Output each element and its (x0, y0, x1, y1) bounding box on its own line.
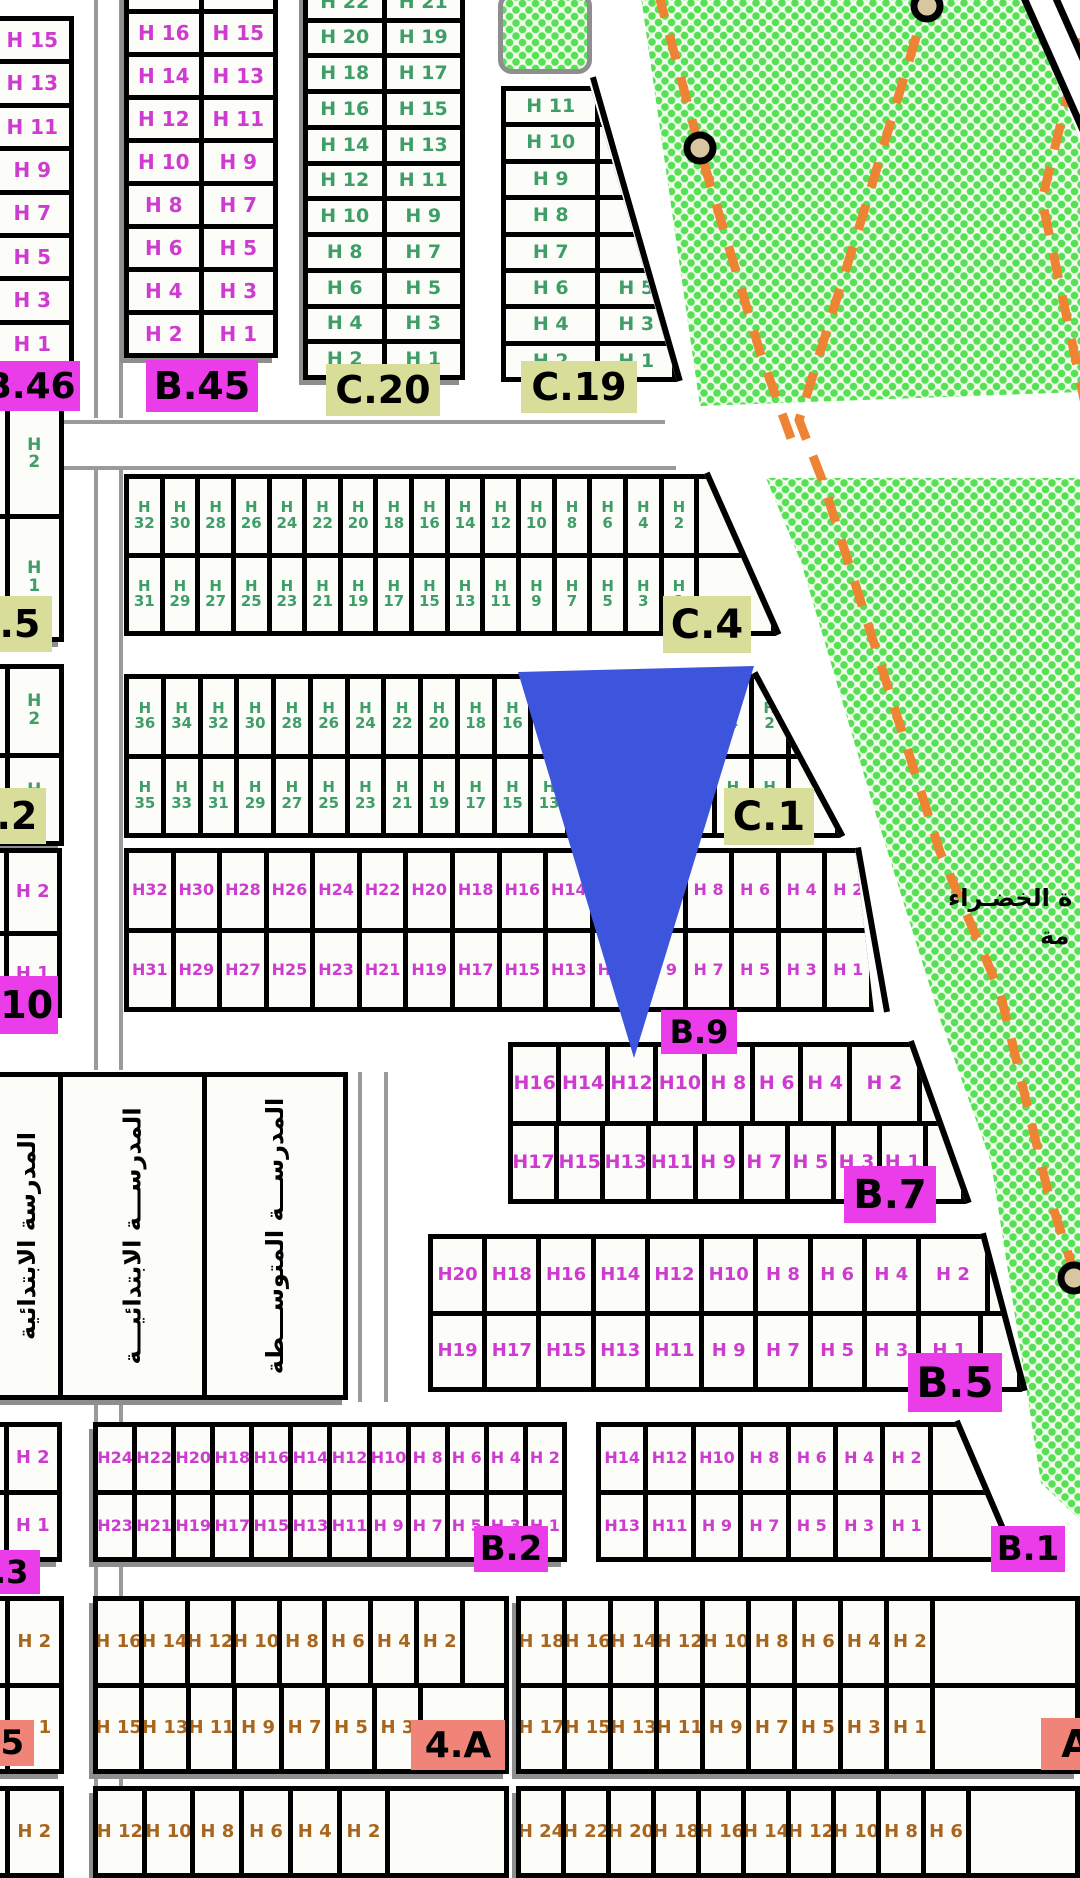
plot-label: H11 (332, 1518, 366, 1534)
plot-cell: H14 (450, 479, 481, 553)
plot-cell: H 6 (506, 273, 595, 304)
plot-cell: H29 (176, 933, 218, 1008)
plot-cell: H 16 (308, 94, 382, 125)
plot-label: H20 (348, 500, 369, 531)
plot-label: H 6 (249, 1823, 283, 1841)
plot-cell: H5 (592, 558, 623, 632)
block-row: H 18H 17 (129, 0, 273, 9)
plot-cell: H 4 (308, 309, 382, 340)
plot-cell: H33 (166, 759, 198, 834)
plot-cell: H 15 (98, 1688, 139, 1770)
block-bottom-right: H 24H 22H 20H 18H 16H 14H 12H 10H 8H 6 (516, 1786, 1080, 1878)
plot-label: H16 (504, 882, 540, 898)
block-label-text: C.19 (531, 365, 626, 409)
plot-cell: H 8 (195, 1791, 239, 1873)
plot-cell: H 4 (838, 1427, 880, 1490)
plot-label: H 8 (413, 1450, 443, 1466)
plot-label: H21 (365, 962, 401, 978)
plot-label: H 7 (746, 1153, 782, 1172)
manhole-circle-marker (914, 0, 940, 19)
plot-cell: H 6 (450, 1427, 484, 1490)
plot-cell: H 10 (236, 1601, 277, 1683)
plot-cell: H 1 (889, 1688, 930, 1770)
plot-label: H12 (490, 500, 511, 531)
plot-label: H10 (659, 1074, 701, 1093)
plot-label: H 9 (702, 1518, 732, 1534)
plot-cell: H 16 (129, 14, 199, 52)
block-row: H32H30H28H26H24H22H20H18H16H14H12H10H8H6… (129, 479, 771, 553)
plot-label: H 3 (847, 1719, 881, 1737)
block-label-C.19: C.19 (521, 361, 637, 413)
block-row: H 18H 17 (308, 58, 460, 89)
plot-cell: H 18 (656, 1791, 696, 1873)
plot-cell: H 8 (751, 1601, 792, 1683)
block-row: H 8H 7 (0, 195, 69, 233)
plot-cell: H25 (236, 558, 267, 632)
plot-cell: H 2 (419, 1601, 460, 1683)
plot-label: H 10 (236, 1633, 277, 1651)
plot-cell: H 7 (758, 1316, 807, 1388)
plot-cell: H 13 (204, 57, 274, 95)
block-row: H 8H 7 (308, 237, 460, 268)
plot-cell: H20 (343, 479, 374, 553)
plot-cell: H 7 (204, 186, 274, 224)
plot-cell: H 15 (567, 1688, 608, 1770)
plot-cell: H11 (651, 1126, 692, 1200)
plot-cell: H 17 (387, 58, 461, 89)
block-row: H 12H 11 (0, 108, 69, 146)
plot-cell: H 8 (758, 1239, 807, 1311)
block-label-text: C.1 (733, 794, 805, 840)
plot-cell: H17 (513, 1126, 554, 1200)
plot-label: H 4 (377, 1633, 411, 1651)
plot-label: H13 (600, 1342, 640, 1360)
plot-label: H 5 (334, 1719, 368, 1737)
plot-label: H 2 (17, 1633, 51, 1651)
plot-label: H 15 (212, 23, 264, 43)
plot-cell: H 4 (803, 1047, 846, 1121)
plot-label: H 2 (423, 1633, 457, 1651)
plot-cell: H3 (628, 558, 659, 632)
plot-label: H 7 (288, 1719, 322, 1737)
plot-label: H2 (27, 693, 41, 728)
plot-label: H 11 (6, 117, 58, 137)
plot-cell: H17 (378, 558, 409, 632)
block-label-C.20: C.20 (326, 364, 440, 416)
plot-label: H12 (610, 1074, 652, 1093)
plot-label: H23 (276, 579, 297, 610)
plot-cell: H 13 (387, 130, 461, 161)
plot-label: H6 (601, 500, 614, 531)
plot-cell: H4 (0, 669, 5, 753)
plot-label: H 7 (219, 195, 257, 215)
plot-label: H 7 (693, 962, 723, 978)
plot-cell: H 2 (852, 1047, 917, 1121)
plot-label: H21 (392, 780, 413, 811)
plot-cell: H 1 (9, 1495, 58, 1558)
plot-cell: H 7 (506, 237, 595, 268)
plot-label: H14 (455, 500, 476, 531)
plot-cell: H 12 (129, 100, 199, 138)
plot-label: H30 (170, 500, 191, 531)
plot-label: H 16 (701, 1823, 741, 1841)
plot-label: H 8 (884, 1823, 918, 1841)
block-row: H 14H 13 (308, 130, 460, 161)
block-label-B.1: B.1 (991, 1526, 1065, 1572)
plot-cell: H 16 (98, 1601, 139, 1683)
plot-label: H 16 (567, 1633, 608, 1651)
plot-cell: H15 (414, 558, 445, 632)
plot-label: H24 (318, 882, 354, 898)
plot-label: H16 (514, 1074, 556, 1093)
block-row: H 6H 5 (0, 238, 69, 276)
block-row: H 14H 13 (129, 57, 273, 95)
plot-cell: H 10 (129, 143, 199, 181)
plot-label: H10 (709, 1266, 749, 1284)
plot-label: المدرســـة المتوســـطة (261, 1098, 289, 1374)
block-row: H 10H 9 (129, 143, 273, 181)
plot-cell: H16 (502, 853, 544, 928)
plot-cell: H 16 (567, 1601, 608, 1683)
plot-cell: H 6 (797, 1601, 838, 1683)
block-label-C.2: C.2 (0, 788, 46, 844)
plot-label: H24 (355, 701, 376, 732)
plot-label: H22 (392, 701, 413, 732)
plot-label: H19 (438, 1342, 478, 1360)
plot-label: H 18 (521, 1633, 562, 1651)
plot-cell: H29 (239, 759, 271, 834)
plot-label: H19 (348, 579, 369, 610)
plot-cell: H 18 (521, 1601, 562, 1683)
plot-label: H29 (179, 962, 215, 978)
plot-label: H30 (179, 882, 215, 898)
plot-cell: H 8 (308, 237, 382, 268)
plot-cell: H 2 (9, 1427, 58, 1490)
plot-label: H 15 (98, 1719, 139, 1737)
plot-cell: H 2 (889, 1601, 930, 1683)
plot-label: H33 (171, 780, 192, 811)
plot-label: H26 (272, 882, 308, 898)
plot-label: H 2 (893, 1633, 927, 1651)
plot-label: H 3 (618, 315, 654, 334)
plot-cell: H27 (276, 759, 308, 834)
plot-label: H 13 (6, 73, 58, 93)
plot-label: H20 (428, 701, 449, 732)
plot-label: H 5 (801, 1719, 835, 1737)
plot-label: H 4 (533, 315, 569, 334)
plot-cell: H 11 (506, 91, 595, 122)
plot-cell: H27 (200, 558, 231, 632)
block-label-text: 4.A (425, 1725, 492, 1766)
plot-cell: H28 (200, 479, 231, 553)
plot-cell: H 12 (791, 1791, 831, 1873)
plot-cell: H 5 (790, 1126, 831, 1200)
plot-cell: H24 (98, 1427, 132, 1490)
plot-cell: H 24 (521, 1791, 561, 1873)
plot-cell: H 15 (387, 94, 461, 125)
plot-cell: H 2 (9, 853, 58, 931)
plot-cell: H 2 (129, 315, 199, 353)
plot-label: H3 (637, 579, 650, 610)
plot-label: H 14 (144, 1633, 185, 1651)
block-bottom-sliver: H 4H 2 (0, 1786, 64, 1878)
plot-label: H18 (492, 1266, 532, 1284)
plot-label: H19 (411, 962, 447, 978)
plot-label: H14 (551, 882, 587, 898)
plot-cell: H11 (332, 1495, 366, 1558)
plot-label: H 6 (801, 1633, 835, 1651)
plot-cell: H24 (315, 853, 357, 928)
block-row: H24H22H20H18H16H14H12H10H 8H 6H 4H 2 (98, 1427, 562, 1490)
plot-cell: المدرســـة الابتدائيـــة (63, 1077, 203, 1395)
plot-cell: H22 (386, 679, 418, 754)
plot-cell: H 9 (0, 151, 69, 189)
plot-label: H26 (318, 701, 339, 732)
plot-cell: H13 (450, 558, 481, 632)
plot-label: H 2 (891, 1450, 921, 1466)
plot-cell: H11 (485, 558, 516, 632)
plot-cell: H 3 (838, 1495, 880, 1558)
plot-label: H 3 (844, 1518, 874, 1534)
plot-cell: H 5 (330, 1688, 371, 1770)
plot-cell: H 4 (0, 853, 4, 931)
plot-label: H27 (281, 780, 302, 811)
plot-cell: H 3 (781, 933, 823, 1008)
plot-label: H13 (455, 579, 476, 610)
plot-cell: H 1 (885, 1495, 927, 1558)
plot-cell: H30 (176, 853, 218, 928)
block-row: H 16H 15 (129, 14, 273, 52)
plot-cell: H20 (423, 679, 455, 754)
block-label-text: B.9 (670, 1013, 729, 1051)
plot-cell: H 6 (813, 1239, 862, 1311)
plot-label: H20 (438, 1266, 478, 1284)
plot-label: H 4 (327, 314, 363, 333)
block-row: H 4H 2 (0, 1601, 59, 1683)
plot-cell: H21 (307, 558, 338, 632)
plot-label: H10 (699, 1450, 735, 1466)
plot-label: H17 (492, 1342, 532, 1360)
plot-cell: المدرسة الابتدائية (0, 1077, 58, 1395)
plot-cell: H24 (272, 479, 303, 553)
block-label-text: 4.5 (0, 1723, 24, 1763)
plot-label: H 5 (820, 1342, 854, 1360)
cadastral-map-page: ة الخضـراء مة H 16H 15H 14H 13H 12H 11H … (0, 0, 1080, 1878)
plot-label: H13 (551, 962, 587, 978)
plot-cell: H 9 (387, 201, 461, 232)
block-bottom-left: H 12H 10H 8H 6H 4H 2 (93, 1786, 509, 1878)
block-label-C.1: C.1 (724, 788, 814, 845)
plot-label: H 17 (399, 64, 448, 83)
plot-label: H26 (241, 500, 262, 531)
block-row: H 16H 14H 12H 10H 8H 6H 4H 2 (98, 1601, 504, 1683)
plot-cell: المدرســـة المتوســـطة (207, 1077, 343, 1395)
plot-label: H 10 (836, 1823, 876, 1841)
plot-label: H29 (170, 579, 191, 610)
plot-cell: H 9 (237, 1688, 278, 1770)
plot-label: H27 (205, 579, 226, 610)
plot-cell: H 4 (0, 1791, 5, 1873)
plot-label: H 11 (212, 109, 264, 129)
plot-cell: H 16 (701, 1791, 741, 1873)
plot-cell: H16 (254, 1427, 288, 1490)
plot-label: H15 (546, 1342, 586, 1360)
plot-cell: H6 (592, 479, 623, 553)
block-school: المدرسة الابتدائيةالمدرســـة الابتدائيــ… (0, 1072, 348, 1400)
plot-cell: H16 (414, 479, 445, 553)
plot-cell: H 3 (0, 281, 69, 319)
plot-label: H 13 (144, 1719, 185, 1737)
plot-label: H2 (27, 437, 41, 472)
plot-label: H10 (526, 500, 547, 531)
plot-label: H 6 (797, 1450, 827, 1466)
plot-cell: H19 (423, 759, 455, 834)
block-label-text: B.45 (154, 364, 250, 408)
plot-label: H15 (504, 962, 540, 978)
plot-cell: H35 (129, 759, 161, 834)
plot-label: H 16 (320, 100, 369, 119)
block-B.1: H14H12H10H 8H 6H 4H 2H13H11H 9H 7H 5H 3H… (596, 1422, 1014, 1562)
plot-label: H 5 (405, 279, 441, 298)
plot-label: H 6 (327, 279, 363, 298)
plot-cell: H 3 (204, 272, 274, 310)
plot-label: H1 (27, 560, 41, 595)
plot-label: H 1 (16, 1517, 50, 1535)
plot-cell: H17 (455, 933, 497, 1008)
plot-label: H 2 (17, 1823, 51, 1841)
block-row: H 12H 11 (308, 166, 460, 197)
plot-label: H 7 (766, 1342, 800, 1360)
plot-cell: H10 (704, 1239, 753, 1311)
plot-cell: H 11 (191, 1688, 232, 1770)
plot-cell: H18 (460, 679, 492, 754)
plot-cell: H 5 (734, 933, 776, 1008)
block-label-text: C.5 (0, 602, 40, 646)
plot-cell: H 9 (698, 1126, 739, 1200)
block-label-text: C.20 (335, 368, 430, 412)
plot-label: H36 (134, 701, 155, 732)
plot-cell: H15 (541, 1316, 590, 1388)
plot-cell: H 5 (791, 1495, 833, 1558)
plot-cell: H 15 (204, 14, 274, 52)
block-row: H 4H 3 (308, 309, 460, 340)
plot-cell: H 7 (744, 1126, 785, 1200)
plot-cell: H 17 (521, 1688, 562, 1770)
plot-cell: H13 (548, 933, 590, 1008)
plot-label: H28 (281, 701, 302, 732)
plot-label: H22 (137, 1450, 171, 1466)
plot-label: H 21 (399, 0, 448, 12)
plot-label: H 7 (413, 1518, 443, 1534)
block-B.45: H 18H 17H 16H 15H 14H 13H 12H 11H 10H 9H… (124, 0, 278, 358)
plot-label: المدرســـة الابتدائيـــة (119, 1107, 147, 1364)
plot-label: H 24 (521, 1823, 561, 1841)
plot-label: H 6 (145, 238, 183, 258)
plot-cell: H 4 (489, 1427, 523, 1490)
plot-label: H27 (225, 962, 261, 978)
block-label-B.46: B.46 (0, 361, 80, 411)
plot-label: H 8 (533, 206, 569, 225)
plot-label: H24 (98, 1450, 132, 1466)
plot-cell: H 12 (98, 1791, 142, 1873)
block-row: H32H30H28H26H24H22H20H18H16H14H12H10H 8H… (129, 853, 869, 928)
block-label-B.45: B.45 (146, 360, 258, 412)
plot-label: H 9 (13, 160, 51, 180)
plot-cell: H 11 (659, 1688, 700, 1770)
plot-cell: H 20 (308, 23, 382, 54)
block-row: H 10H 9 (0, 151, 69, 189)
plot-cell: H 9 (372, 1495, 406, 1558)
plot-cell: H19 (408, 933, 450, 1008)
plot-label: H7 (566, 579, 579, 610)
plot-cell: H25 (269, 933, 311, 1008)
plot-cell: H13 (596, 1316, 645, 1388)
plot-cell: H 6 (129, 229, 199, 267)
plot-cell: H2 (10, 395, 60, 514)
plot-label: H 14 (320, 136, 369, 155)
plot-label: H14 (562, 1074, 604, 1093)
plot-cell: H32 (129, 479, 160, 553)
plot-label: H 3 (381, 1719, 415, 1737)
plot-cell: H8 (557, 479, 588, 553)
plot-label: H 6 (452, 1450, 482, 1466)
plot-cell: H 9 (506, 164, 595, 195)
plot-label: H 3 (405, 314, 441, 333)
block-label-B.9: B.9 (661, 1010, 737, 1054)
plot-label: H 4 (844, 1450, 874, 1466)
plot-label: H 7 (405, 243, 441, 262)
plot-label: H 7 (13, 203, 51, 223)
plot-label: H13 (605, 1153, 646, 1172)
plot-cell: H 5 (387, 273, 461, 304)
plot-label: H31 (208, 780, 229, 811)
plot-label: H 11 (526, 97, 575, 116)
plot-cell: H 13 (613, 1688, 654, 1770)
plot-cell: H 8 (129, 186, 199, 224)
plot-label: H 6 (331, 1633, 365, 1651)
plot-label: H23 (98, 1518, 132, 1534)
plot-cell: H 4 (373, 1601, 414, 1683)
plot-label: H21 (312, 579, 333, 610)
plot-cell: H22 (362, 853, 404, 928)
block-row: H 4H 3 (129, 272, 273, 310)
plot-label: H 10 (147, 1823, 191, 1841)
block-row: H 10H 9 (308, 201, 460, 232)
plot-label: H2 (673, 500, 686, 531)
plot-label: H 2 (16, 883, 50, 901)
plot-label: H28 (225, 882, 261, 898)
plot-label: H11 (490, 579, 511, 610)
block-label-text: B.46 (0, 366, 76, 407)
plot-label: H 4 (491, 1450, 521, 1466)
plot-cell: H14 (601, 1427, 643, 1490)
plot-cell: H 8 (282, 1601, 323, 1683)
plot-cell: H 8 (707, 1047, 750, 1121)
plot-label: H 8 (200, 1823, 234, 1841)
plot-label: H 4 (847, 1633, 881, 1651)
plot-label: H 13 (399, 136, 448, 155)
plot-label: H30 (245, 701, 266, 732)
plot-cell: H 14 (144, 1601, 185, 1683)
plot-cell: H7 (557, 558, 588, 632)
plot-cell: H 9 (705, 1688, 746, 1770)
block-label-text: C.2 (0, 794, 37, 838)
plot-label: H14 (604, 1450, 640, 1466)
plot-cell: H 9 (204, 143, 274, 181)
plot-label: H 9 (374, 1518, 404, 1534)
plot-cell: H15 (559, 1126, 600, 1200)
plot-cell: H 4 (129, 272, 199, 310)
